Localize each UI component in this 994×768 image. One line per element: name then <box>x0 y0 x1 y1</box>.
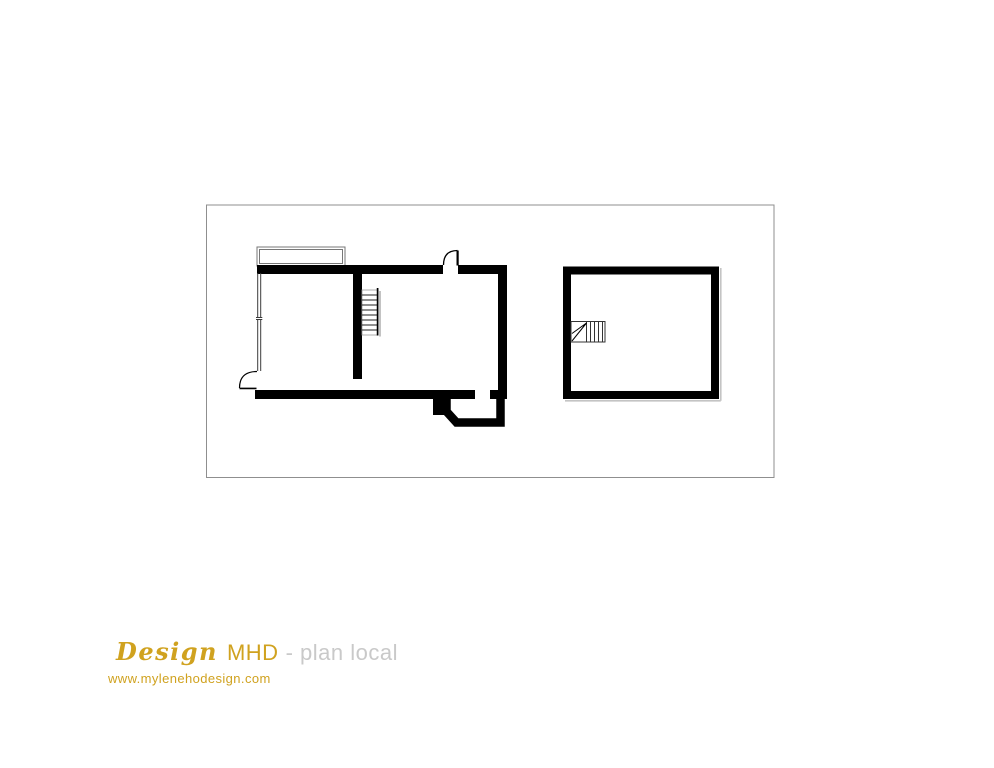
straight-stair-icon <box>362 288 380 337</box>
door-swing-arc <box>240 372 258 389</box>
veranda-bay <box>257 247 345 266</box>
bottom-left-door-icon <box>240 372 258 389</box>
brand-title-line: Design MHD - plan local <box>108 640 398 664</box>
left-unit-walls <box>255 265 507 399</box>
bottom-wall <box>255 390 475 399</box>
rear-appendix-walls <box>433 398 501 423</box>
top-wall-left-segment <box>257 265 443 274</box>
appendix-left-block <box>433 398 450 415</box>
brand-script-logo: Design <box>108 640 218 664</box>
winder-stair-icon <box>571 322 605 343</box>
brand-website: www.mylenehodesign.com <box>108 671 398 686</box>
branding-block: Design MHD - plan local www.mylenehodesi… <box>108 640 398 686</box>
plan-title: - plan local <box>286 642 398 664</box>
interior-partition-wall <box>353 273 362 379</box>
brand-name: MHD <box>227 642 279 664</box>
bottom-wall-stub <box>490 390 507 399</box>
right-wall <box>498 265 507 391</box>
door-swing-arc <box>444 251 458 266</box>
glazed-left-wall <box>256 273 262 371</box>
top-door-icon <box>444 251 458 266</box>
left-unit-plan <box>240 247 508 423</box>
right-unit-plan <box>565 268 721 401</box>
